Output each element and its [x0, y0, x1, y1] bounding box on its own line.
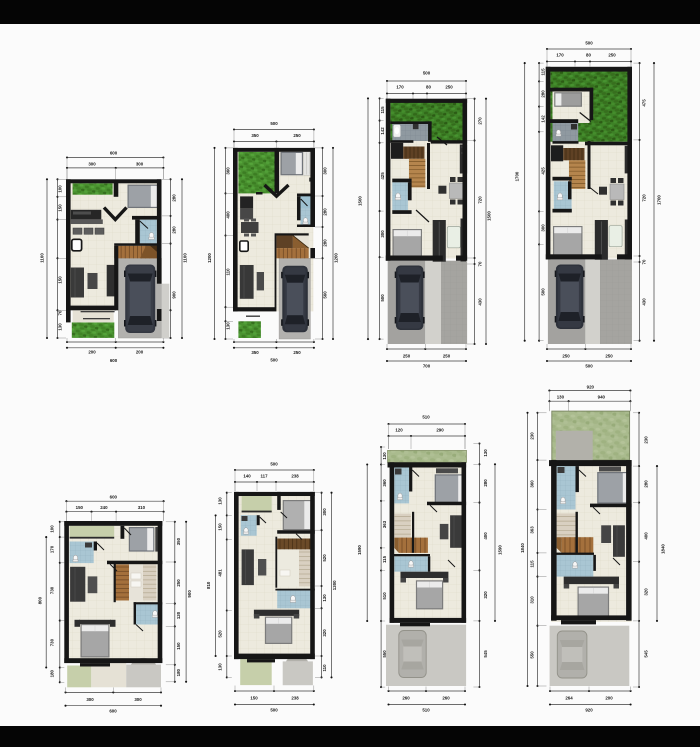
- svg-text:1100: 1100: [183, 253, 188, 263]
- svg-text:130: 130: [226, 322, 231, 330]
- svg-text:320: 320: [644, 588, 649, 596]
- svg-text:280: 280: [172, 194, 177, 202]
- svg-text:130: 130: [176, 611, 181, 619]
- svg-text:180: 180: [50, 669, 55, 677]
- svg-text:1500: 1500: [358, 196, 363, 206]
- svg-text:260: 260: [442, 696, 450, 701]
- svg-text:481: 481: [218, 569, 223, 577]
- svg-text:320: 320: [483, 591, 488, 599]
- svg-text:260: 260: [402, 696, 410, 701]
- svg-text:545: 545: [483, 650, 488, 658]
- svg-text:500: 500: [380, 294, 385, 302]
- svg-text:500: 500: [585, 41, 593, 46]
- svg-text:545: 545: [644, 650, 649, 658]
- svg-text:360: 360: [226, 167, 231, 175]
- svg-text:900: 900: [187, 590, 192, 598]
- svg-text:250: 250: [293, 350, 301, 355]
- svg-text:130: 130: [218, 497, 223, 505]
- svg-text:1700: 1700: [657, 195, 662, 205]
- svg-text:600: 600: [110, 358, 118, 363]
- svg-text:250: 250: [443, 353, 451, 358]
- svg-text:270: 270: [478, 117, 483, 125]
- svg-text:250: 250: [176, 579, 181, 587]
- svg-text:115: 115: [380, 106, 385, 114]
- svg-text:940: 940: [598, 394, 606, 399]
- svg-text:200: 200: [136, 349, 144, 354]
- svg-text:115: 115: [540, 68, 545, 76]
- svg-text:500: 500: [540, 288, 545, 296]
- svg-text:300: 300: [86, 697, 94, 702]
- svg-text:115: 115: [382, 555, 387, 563]
- svg-text:1200: 1200: [334, 253, 339, 263]
- svg-text:550: 550: [530, 651, 535, 659]
- svg-text:310: 310: [138, 505, 146, 510]
- svg-text:115: 115: [530, 560, 535, 568]
- svg-text:140: 140: [243, 474, 251, 479]
- svg-text:350: 350: [251, 350, 259, 355]
- svg-text:425: 425: [540, 167, 545, 175]
- svg-text:142: 142: [540, 115, 545, 123]
- svg-text:280: 280: [172, 226, 177, 234]
- svg-text:363: 363: [382, 520, 387, 528]
- svg-text:520: 520: [218, 630, 223, 638]
- svg-text:80: 80: [586, 53, 591, 58]
- svg-text:130: 130: [322, 594, 327, 602]
- svg-text:280: 280: [644, 480, 649, 488]
- svg-text:117: 117: [260, 474, 268, 479]
- svg-text:240: 240: [100, 505, 108, 510]
- svg-text:280: 280: [323, 208, 328, 216]
- svg-text:130: 130: [382, 452, 387, 460]
- svg-text:250: 250: [562, 353, 570, 358]
- svg-text:1590: 1590: [357, 545, 362, 555]
- svg-text:150: 150: [218, 523, 223, 531]
- svg-text:150: 150: [58, 276, 63, 284]
- svg-text:500: 500: [270, 358, 278, 363]
- svg-text:800: 800: [38, 596, 43, 604]
- svg-text:300: 300: [134, 697, 142, 702]
- svg-text:1590: 1590: [498, 545, 503, 555]
- svg-text:720: 720: [478, 196, 483, 204]
- svg-text:150: 150: [58, 204, 63, 212]
- svg-text:290: 290: [436, 428, 444, 433]
- svg-text:320: 320: [322, 629, 327, 637]
- svg-text:250: 250: [445, 85, 453, 90]
- svg-text:430: 430: [478, 298, 483, 306]
- svg-text:250: 250: [293, 133, 301, 138]
- svg-text:300: 300: [136, 161, 144, 166]
- svg-text:920: 920: [587, 384, 595, 389]
- svg-text:1100: 1100: [40, 253, 45, 263]
- svg-text:150: 150: [76, 505, 84, 510]
- svg-text:250: 250: [403, 353, 411, 358]
- svg-text:1840: 1840: [520, 543, 525, 553]
- svg-text:425: 425: [380, 172, 385, 180]
- svg-text:130: 130: [218, 663, 223, 671]
- svg-text:264: 264: [565, 696, 573, 701]
- svg-text:300: 300: [380, 230, 385, 238]
- svg-text:300: 300: [540, 224, 545, 232]
- svg-text:510: 510: [422, 415, 430, 420]
- svg-text:150: 150: [250, 696, 258, 701]
- svg-text:250: 250: [605, 353, 613, 358]
- svg-text:280: 280: [540, 90, 545, 98]
- svg-text:70: 70: [478, 261, 483, 266]
- svg-text:500: 500: [270, 708, 278, 713]
- svg-text:100: 100: [58, 185, 63, 193]
- svg-text:230: 230: [530, 432, 535, 440]
- svg-text:310: 310: [530, 596, 535, 604]
- svg-text:363: 363: [530, 526, 535, 534]
- svg-text:142: 142: [380, 127, 385, 135]
- svg-text:600: 600: [110, 151, 118, 156]
- svg-text:360: 360: [530, 480, 535, 488]
- svg-text:200: 200: [88, 349, 96, 354]
- svg-text:510: 510: [422, 708, 430, 713]
- svg-text:500: 500: [270, 462, 278, 467]
- svg-text:70: 70: [58, 310, 63, 315]
- svg-text:700: 700: [423, 364, 431, 369]
- svg-text:130: 130: [557, 394, 565, 399]
- svg-text:500: 500: [423, 71, 431, 76]
- svg-text:300: 300: [88, 161, 96, 166]
- svg-text:170: 170: [396, 85, 404, 90]
- svg-text:1200: 1200: [207, 253, 212, 263]
- svg-text:180: 180: [176, 668, 181, 676]
- svg-text:730: 730: [50, 586, 55, 594]
- svg-text:170: 170: [556, 53, 564, 58]
- svg-text:110: 110: [322, 664, 327, 672]
- svg-text:920: 920: [585, 708, 593, 713]
- svg-text:510: 510: [382, 592, 387, 600]
- svg-text:1500: 1500: [487, 211, 492, 221]
- svg-text:70: 70: [642, 259, 647, 264]
- svg-text:360: 360: [382, 479, 387, 487]
- svg-text:170: 170: [50, 545, 55, 553]
- svg-text:238: 238: [291, 696, 299, 701]
- svg-text:400: 400: [483, 532, 488, 540]
- svg-text:100: 100: [50, 525, 55, 533]
- svg-text:300: 300: [323, 167, 328, 175]
- svg-text:150: 150: [176, 642, 181, 650]
- svg-text:230: 230: [644, 436, 649, 444]
- svg-text:110: 110: [226, 268, 231, 276]
- svg-text:280: 280: [483, 479, 488, 487]
- svg-text:238: 238: [291, 474, 299, 479]
- svg-text:80: 80: [426, 85, 431, 90]
- svg-text:400: 400: [644, 532, 649, 540]
- svg-text:1700: 1700: [514, 171, 519, 181]
- svg-text:120: 120: [395, 428, 403, 433]
- svg-text:560: 560: [323, 291, 328, 299]
- svg-text:280: 280: [323, 239, 328, 247]
- svg-text:720: 720: [642, 194, 647, 202]
- svg-text:600: 600: [110, 494, 118, 499]
- svg-text:200: 200: [605, 696, 613, 701]
- svg-text:130: 130: [58, 323, 63, 331]
- svg-text:350: 350: [251, 133, 259, 138]
- svg-text:300: 300: [322, 508, 327, 516]
- svg-text:500: 500: [585, 364, 593, 369]
- svg-text:130: 130: [483, 449, 488, 457]
- svg-text:900: 900: [172, 291, 177, 299]
- svg-text:350: 350: [176, 537, 181, 545]
- svg-text:730: 730: [50, 638, 55, 646]
- svg-text:520: 520: [322, 554, 327, 562]
- svg-text:430: 430: [642, 298, 647, 306]
- svg-text:475: 475: [642, 99, 647, 107]
- svg-text:250: 250: [608, 53, 616, 58]
- svg-text:600: 600: [109, 709, 117, 714]
- svg-text:1300: 1300: [332, 580, 337, 590]
- svg-text:400: 400: [226, 211, 231, 219]
- svg-text:810: 810: [206, 581, 211, 589]
- svg-text:500: 500: [270, 121, 278, 126]
- svg-text:1840: 1840: [661, 544, 666, 554]
